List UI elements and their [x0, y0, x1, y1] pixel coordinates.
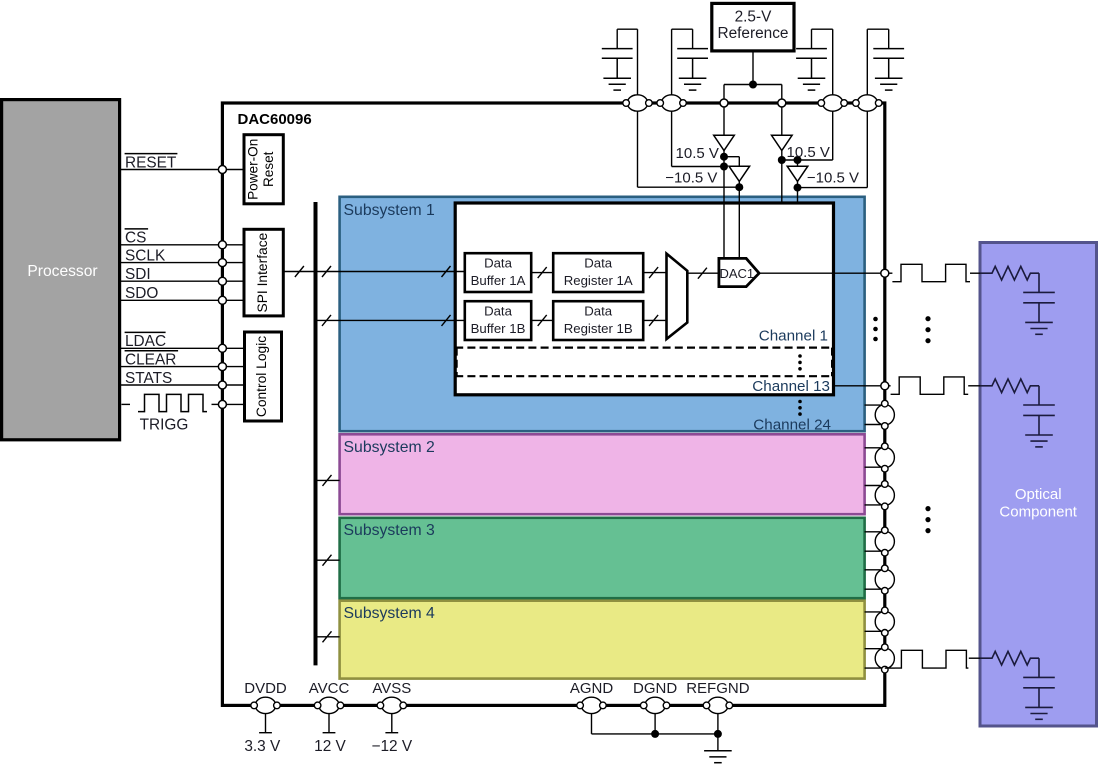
svg-text:Channel 1: Channel 1	[759, 327, 828, 344]
svg-text:10.5 V: 10.5 V	[676, 145, 719, 162]
svg-text:Data: Data	[484, 256, 513, 271]
svg-text:SCLK: SCLK	[125, 247, 166, 264]
svg-text:Register 1B: Register 1B	[564, 321, 633, 336]
svg-text:AVCC: AVCC	[309, 680, 350, 697]
svg-text:2.5-V: 2.5-V	[735, 9, 773, 26]
svg-text:CS: CS	[125, 230, 146, 247]
svg-text:Buffer 1B: Buffer 1B	[471, 321, 526, 336]
svg-text:12 V: 12 V	[314, 738, 346, 755]
svg-text:Power-On: Power-On	[246, 139, 261, 200]
svg-text:SPI Interface: SPI Interface	[255, 232, 270, 312]
svg-text:DGND: DGND	[633, 680, 677, 697]
svg-text:SDO: SDO	[125, 285, 158, 302]
svg-text:Buffer 1A: Buffer 1A	[471, 273, 526, 288]
svg-text:−12 V: −12 V	[371, 738, 412, 755]
svg-text:Control Logic: Control Logic	[254, 336, 269, 417]
svg-text:CLEAR: CLEAR	[125, 351, 176, 368]
svg-text:−10.5 V: −10.5 V	[807, 170, 859, 187]
svg-text:Subsystem 2: Subsystem 2	[344, 439, 435, 456]
svg-text:Subsystem 3: Subsystem 3	[344, 522, 436, 539]
svg-text:REFGND: REFGND	[686, 680, 750, 697]
svg-text:Subsystem 1: Subsystem 1	[344, 202, 436, 219]
svg-text:Channel 13: Channel 13	[752, 378, 830, 395]
svg-text:DAC60096: DAC60096	[238, 111, 312, 128]
svg-text:Processor: Processor	[27, 263, 97, 280]
svg-text:DAC1: DAC1	[719, 266, 754, 281]
svg-text:3.3 V: 3.3 V	[244, 738, 281, 755]
svg-text:10.5 V: 10.5 V	[787, 144, 830, 161]
svg-text:Subsystem 4: Subsystem 4	[344, 605, 436, 622]
svg-text:STATS: STATS	[125, 370, 172, 387]
svg-text:Channel 24: Channel 24	[753, 417, 831, 434]
svg-text:TRIGG: TRIGG	[140, 417, 189, 434]
svg-text:DVDD: DVDD	[244, 680, 287, 697]
svg-text:Reference: Reference	[717, 25, 788, 42]
svg-text:Data: Data	[484, 304, 513, 319]
svg-text:−10.5 V: −10.5 V	[665, 170, 717, 187]
svg-text:AVSS: AVSS	[372, 680, 411, 697]
svg-text:RESET: RESET	[125, 154, 177, 171]
svg-text:LDAC: LDAC	[125, 333, 166, 350]
svg-text:SDI: SDI	[125, 266, 151, 283]
svg-text:Reset: Reset	[261, 151, 276, 187]
svg-text:Register 1A: Register 1A	[564, 273, 633, 288]
svg-text:Data: Data	[584, 256, 613, 271]
svg-text:Data: Data	[584, 304, 613, 319]
svg-text:Optical: Optical	[1015, 486, 1062, 503]
svg-text:AGND: AGND	[570, 680, 614, 697]
svg-text:Component: Component	[999, 504, 1077, 521]
